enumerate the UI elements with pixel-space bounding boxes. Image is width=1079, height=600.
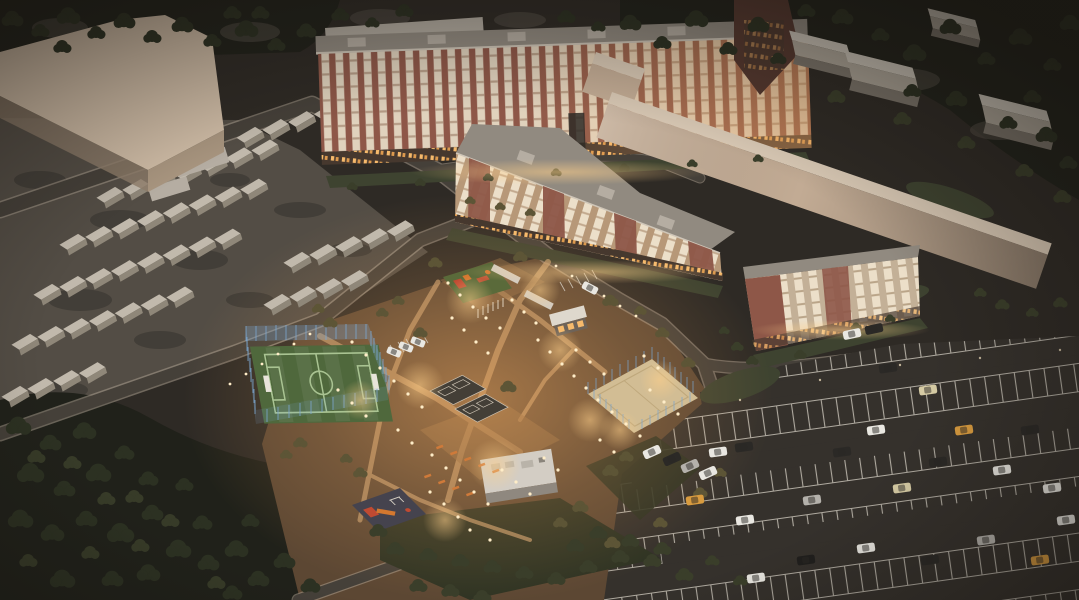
architectural-rendering: [0, 0, 1079, 600]
vignette: [0, 0, 1079, 600]
